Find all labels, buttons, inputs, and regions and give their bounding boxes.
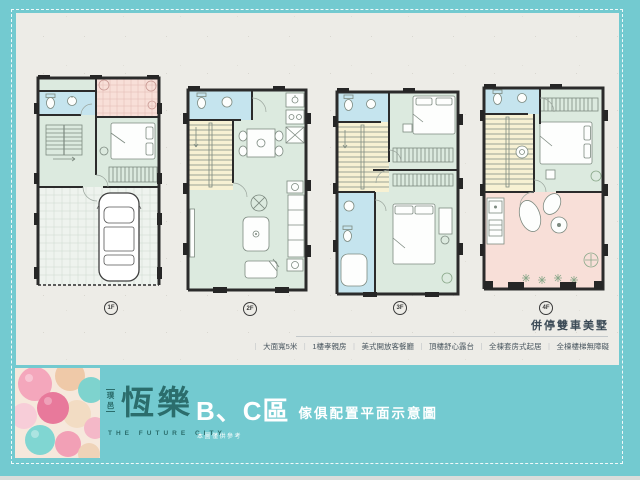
bathroom-3f-bottom <box>337 192 375 294</box>
floor-label: 3F <box>396 305 403 311</box>
bathroom-2f <box>188 90 252 120</box>
feature-separator: ｜ <box>351 342 358 352</box>
floor-label: 4F <box>542 305 549 311</box>
brand-prefix: 璞 邑 <box>106 389 115 412</box>
floorplan-2f <box>183 85 311 297</box>
bathroom-4f <box>484 88 540 114</box>
floor-badge-4f: 4F <box>539 301 553 315</box>
feature-separator: ｜ <box>546 342 553 352</box>
feature-item: 1樓孝親房 <box>312 341 346 352</box>
zone-title-row: B、C區 傢俱配置平面示意圖 <box>196 397 438 426</box>
toilet-icon <box>345 100 353 111</box>
headline-tagline: 併停雙車美墅 <box>531 317 609 333</box>
zone-title: B、C區 <box>196 397 290 426</box>
floorplan-3f-drawing <box>333 88 463 298</box>
patio-tiled <box>96 78 159 117</box>
sink-icon <box>222 97 232 107</box>
nightstand-icon <box>403 124 412 132</box>
feature-item: 大面寬5米 <box>263 341 297 352</box>
brand-prefix-char: 璞 <box>107 392 115 400</box>
floor-badge-2f: 2F <box>243 302 257 316</box>
prefix-top-bar <box>106 389 115 390</box>
garage <box>38 187 159 285</box>
stairs-icon <box>337 122 389 192</box>
zone-description: 傢俱配置平面示意圖 <box>299 402 439 426</box>
divider-rule <box>296 336 608 337</box>
floorplan-poster: 1F <box>0 0 640 480</box>
toilet-icon <box>344 231 352 242</box>
disclaimer-text: 本圖僅供參考 <box>197 431 242 440</box>
desk-icon <box>439 208 452 234</box>
feature-separator: ｜ <box>418 342 425 352</box>
chaise-icon <box>245 259 279 278</box>
bathroom-1f <box>38 91 96 115</box>
coffee-table-icon <box>243 217 269 251</box>
sink-icon <box>344 201 354 211</box>
brand-balloons-photo <box>15 368 100 458</box>
nightstand-icon <box>546 170 555 179</box>
sink-icon <box>518 94 527 103</box>
feature-list: ｜ 大面寬5米 ｜ 1樓孝親房 ｜ 美式開放客餐廳 ｜ 頂樓舒心露台 ｜ 全棟套… <box>251 341 609 352</box>
feature-item: 全棟套房式起居 <box>489 341 542 352</box>
feature-item: 頂樓舒心露台 <box>429 341 474 352</box>
floorplan-1f-drawing <box>33 75 163 293</box>
kitchen-counter <box>286 93 304 143</box>
feature-item: 美式開放客餐廳 <box>362 341 415 352</box>
tv-console-icon <box>190 209 195 257</box>
floorplan-3f <box>333 88 463 298</box>
toilet-icon <box>47 98 55 109</box>
floor-badge-1f: 1F <box>104 301 118 315</box>
stairs-icon <box>188 120 233 190</box>
feature-separator: ｜ <box>252 342 259 352</box>
feature-separator: ｜ <box>301 342 308 352</box>
terrace <box>484 191 603 289</box>
prefix-bottom-bar <box>106 411 115 412</box>
outdoor-counter-icon <box>487 198 504 244</box>
car-icon <box>97 193 141 281</box>
feature-separator: ｜ <box>478 342 485 352</box>
bottom-edge-strip <box>0 476 640 480</box>
stairs-icon <box>484 114 534 192</box>
bathtub-icon <box>341 254 367 286</box>
sink-icon <box>367 100 376 109</box>
floorplan-1f <box>33 75 163 293</box>
floorplan-4f <box>478 84 609 299</box>
bathroom-3f-top <box>337 92 389 122</box>
feature-item: 全棟樓梯無障礙 <box>557 341 610 352</box>
toilet-icon <box>494 94 502 105</box>
stair-hall <box>38 115 96 187</box>
brand-name: 恆樂 <box>121 383 193 423</box>
floor-label: 1F <box>107 305 114 311</box>
brand-prefix-char: 邑 <box>107 402 115 410</box>
entry-strip <box>38 78 96 91</box>
floor-badge-3f: 3F <box>393 301 407 315</box>
floorplan-2f-drawing <box>183 85 311 297</box>
floor-label: 2F <box>246 306 253 312</box>
washer-icon <box>516 146 528 158</box>
floorplan-4f-drawing <box>478 84 609 299</box>
toilet-icon <box>198 98 206 109</box>
